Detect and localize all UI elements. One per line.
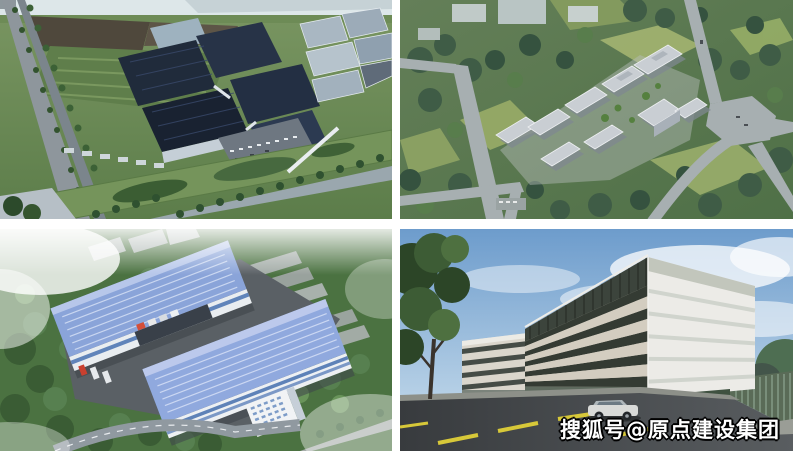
office-park-illustration <box>400 0 793 219</box>
photo-panel-top-right <box>400 0 793 219</box>
aerial-campus-illustration <box>0 0 392 219</box>
photo-panel-top-left <box>0 0 392 219</box>
photo-grid <box>0 0 793 451</box>
logistics-park-illustration <box>0 229 392 451</box>
watermark-text: 搜狐号@原点建设集团 <box>560 414 780 444</box>
photo-panel-bottom-left <box>0 229 392 451</box>
photo-collage: 搜狐号@原点建设集团 <box>0 0 793 451</box>
